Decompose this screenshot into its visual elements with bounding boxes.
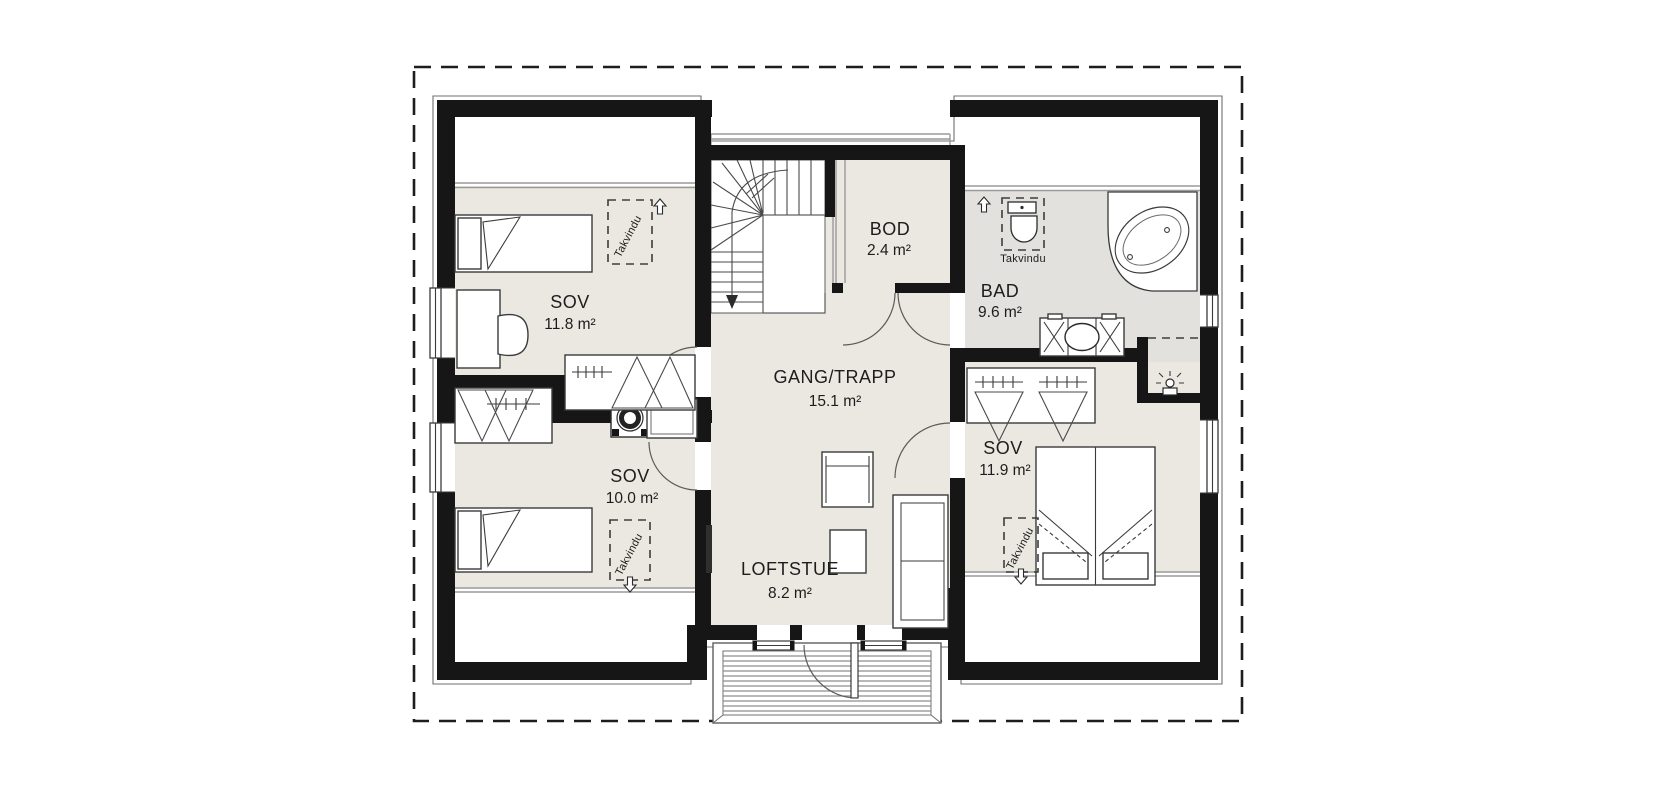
sofa [893, 495, 948, 628]
room-name: BOD [870, 219, 911, 239]
stair-landing-void [763, 215, 825, 313]
window-left-sov118 [430, 288, 455, 358]
double-bed [1036, 447, 1155, 585]
single-bed [455, 215, 592, 272]
single-bed [455, 508, 592, 572]
window-right-sov119 [1200, 420, 1218, 493]
room-name: BAD [981, 281, 1020, 301]
desk-chair [498, 315, 528, 356]
roof-window-label: Takvindu [1000, 253, 1046, 265]
vanity-sink [1040, 314, 1124, 356]
balcony [713, 643, 941, 723]
floor-plan-page: Takvindu Takvindu Takvindu Takvindu SOV … [0, 0, 1670, 800]
room-area: 8.2 m² [768, 585, 812, 602]
wardrobe-sov118 [565, 355, 695, 410]
wall-tv-icon [706, 525, 712, 573]
window-left-sov100 [430, 423, 455, 492]
room-area: 11.8 m² [544, 316, 595, 333]
room-name: LOFTSTUE [741, 559, 839, 579]
armchair [822, 452, 873, 507]
window-balcony-left [753, 641, 794, 650]
room-name: GANG/TRAPP [773, 367, 896, 387]
floor-plan: Takvindu Takvindu Takvindu Takvindu SOV … [0, 0, 1670, 800]
room-name: SOV [550, 292, 590, 312]
window-right-bad [1200, 295, 1218, 327]
window-balcony-right [861, 641, 906, 650]
stairs [711, 160, 833, 313]
room-area: 9.6 m² [978, 304, 1022, 321]
room-name: SOV [610, 466, 650, 486]
wardrobe-sov100 [455, 388, 552, 443]
room-area: 15.1 m² [809, 393, 862, 410]
room-area: 11.9 m² [979, 462, 1030, 479]
room-area: 10.0 m² [606, 490, 659, 507]
room-area: 2.4 m² [867, 242, 911, 259]
room-name: SOV [983, 438, 1023, 458]
